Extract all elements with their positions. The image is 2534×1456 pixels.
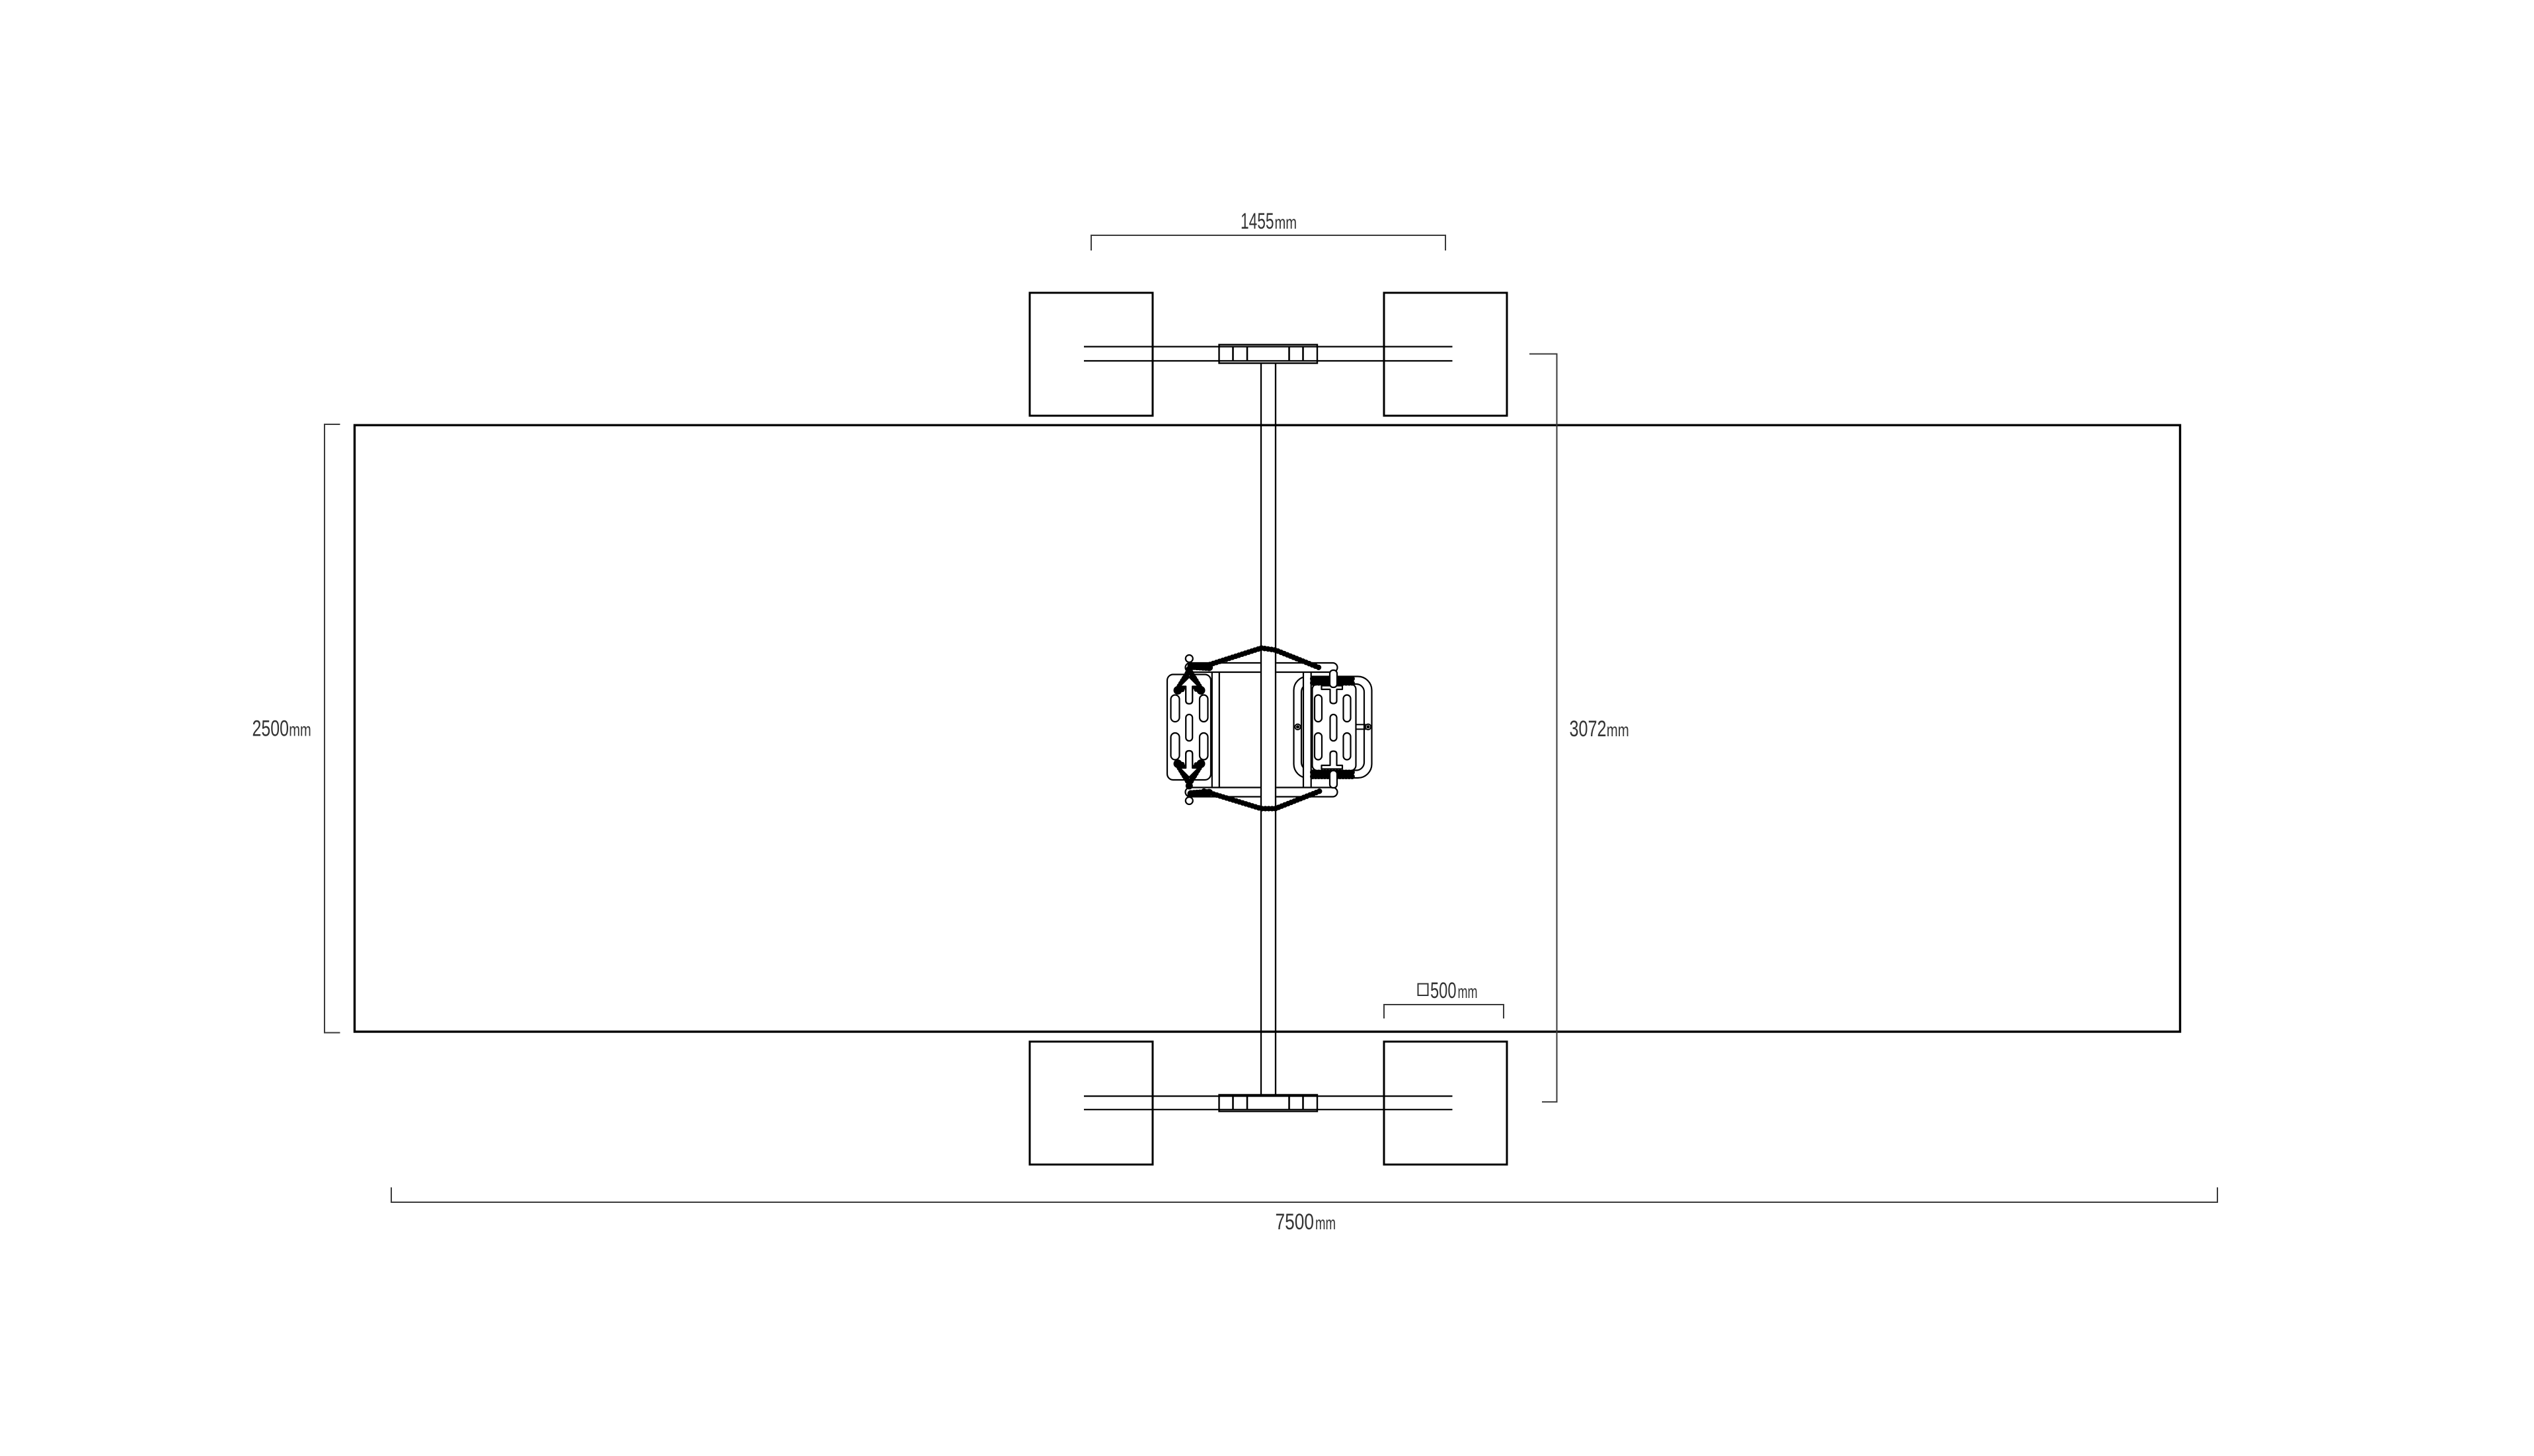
svg-text:mm: mm <box>1458 981 1478 1002</box>
svg-text:mm: mm <box>1315 1213 1336 1233</box>
svg-text:3072: 3072 <box>1570 716 1607 742</box>
svg-text:2500: 2500 <box>252 716 289 742</box>
svg-text:1455: 1455 <box>1241 209 1274 234</box>
svg-text:500: 500 <box>1430 978 1457 1003</box>
svg-text:mm: mm <box>1275 212 1297 233</box>
svg-text:7500: 7500 <box>1276 1209 1315 1235</box>
svg-text:mm: mm <box>289 720 311 740</box>
svg-text:mm: mm <box>1607 720 1629 740</box>
